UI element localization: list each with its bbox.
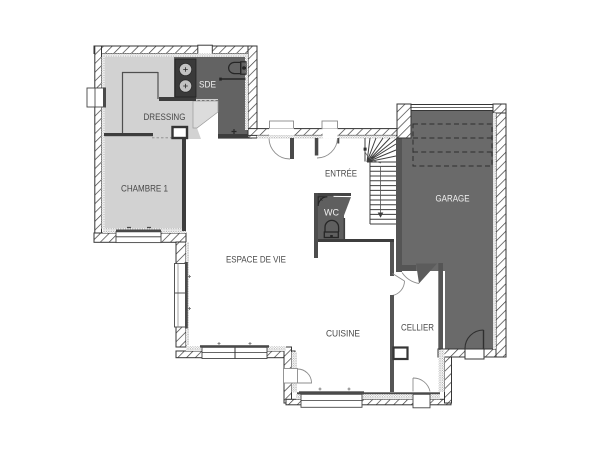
svg-text:GARAGE: GARAGE: [436, 193, 470, 204]
svg-text:WC: WC: [324, 207, 339, 218]
svg-text:CHAMBRE 1: CHAMBRE 1: [121, 183, 168, 194]
svg-text:ENTRÉE: ENTRÉE: [325, 168, 357, 179]
svg-text:ESPACE DE VIE: ESPACE DE VIE: [226, 254, 286, 265]
svg-text:CELLIER: CELLIER: [401, 322, 434, 333]
svg-text:DRESSING: DRESSING: [144, 112, 186, 123]
svg-text:CUISINE: CUISINE: [326, 328, 360, 339]
svg-text:SDE: SDE: [199, 79, 216, 90]
